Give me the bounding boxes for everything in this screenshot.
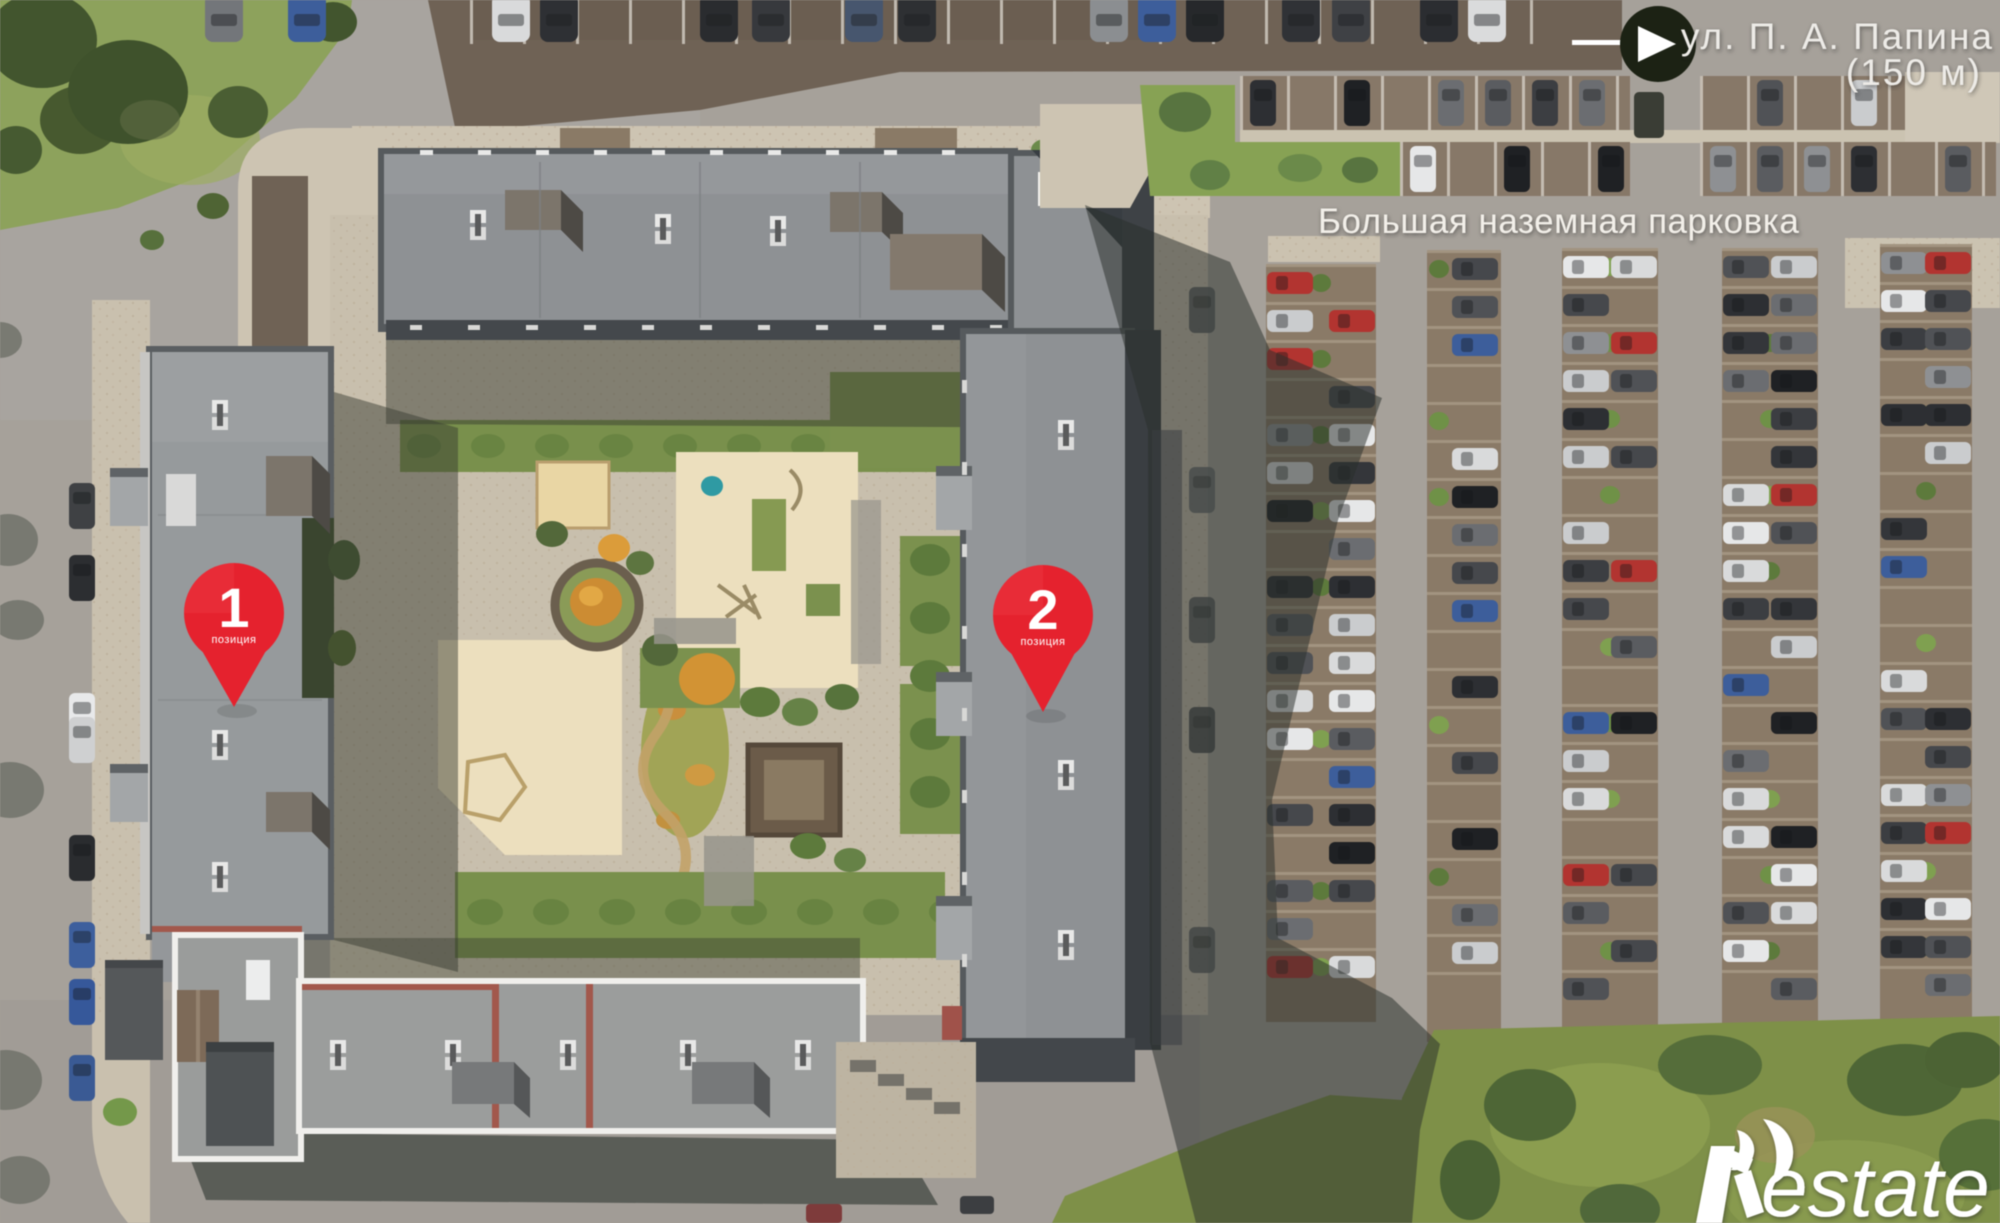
- svg-text:ул. П. А. Папина: ул. П. А. Папина: [1681, 16, 1994, 57]
- svg-text:estate: estate: [1761, 1140, 1990, 1223]
- svg-text:1: 1: [218, 576, 249, 639]
- svg-text:(150 м): (150 м): [1846, 52, 1982, 93]
- svg-text:позиция: позиция: [1020, 636, 1065, 648]
- svg-text:2: 2: [1027, 578, 1058, 641]
- svg-text:Большая наземная парковка: Большая наземная парковка: [1318, 202, 1799, 241]
- svg-text:позиция: позиция: [211, 634, 256, 646]
